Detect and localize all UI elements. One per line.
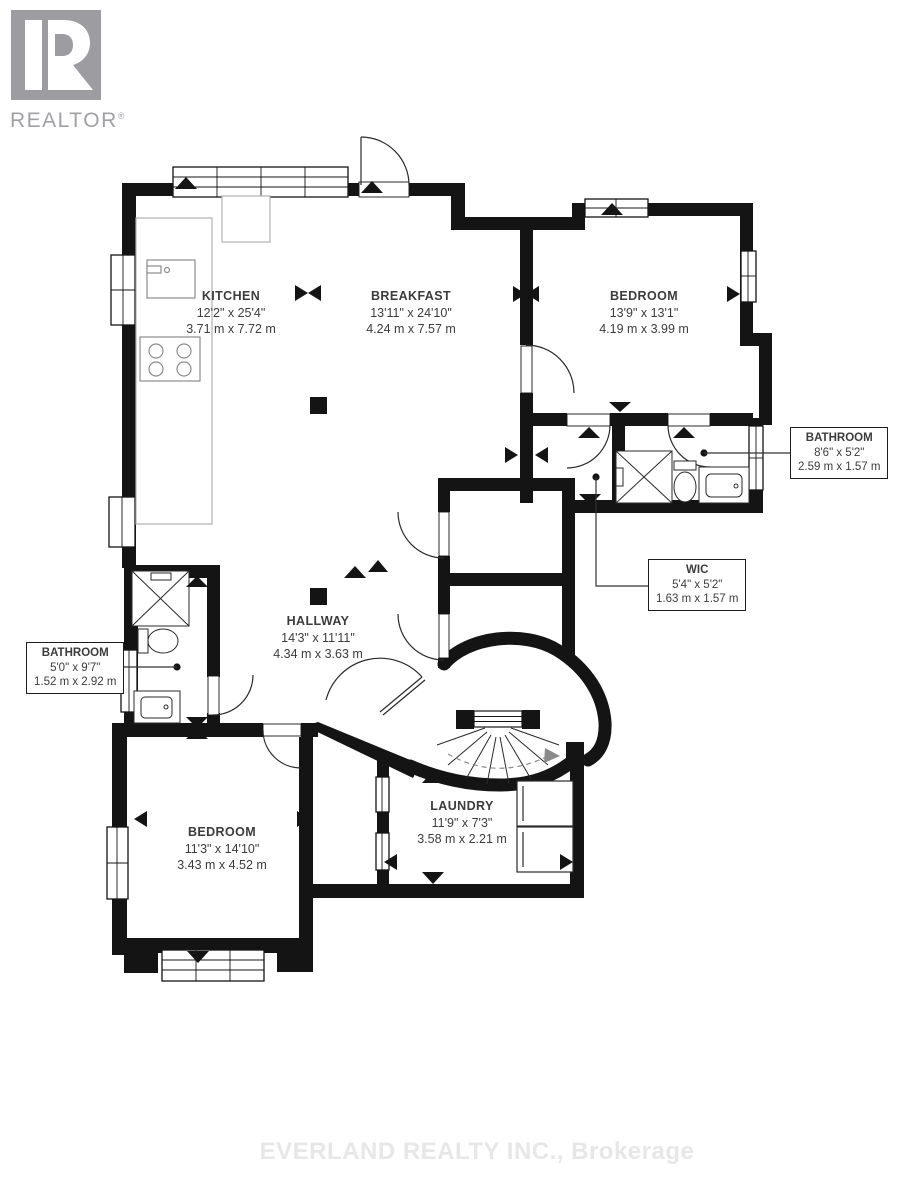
room-dim-imperial: 8'6" x 5'2" (798, 446, 880, 461)
room-name: BEDROOM (599, 288, 689, 305)
stair-direction-arrow (544, 748, 560, 763)
toilet-left-tank (138, 629, 148, 653)
entry-door (361, 137, 409, 185)
room-dim-imperial: 12'2" x 25'4" (186, 305, 276, 322)
washer (517, 781, 573, 826)
room-dim-imperial: 13'11" x 24'10" (366, 305, 456, 322)
room-dim-metric: 1.63 m x 1.57 m (656, 592, 738, 607)
toilet-right-tank (674, 461, 696, 470)
room-label-bathroom-right: BATHROOM 8'6" x 5'2" 2.59 m x 1.57 m (790, 427, 888, 479)
room-dim-imperial: 5'0" x 9'7" (34, 661, 116, 676)
bedroom-upper-door (526, 345, 574, 393)
floor-plan-page: REALTOR® (0, 0, 915, 1200)
column-1 (310, 397, 327, 414)
bathroom-left-fixtures (132, 571, 189, 723)
room-dim-metric: 3.43 m x 4.52 m (177, 857, 267, 874)
room-label-wic: WIC 5'4" x 5'2" 1.63 m x 1.57 m (648, 559, 746, 611)
room-dim-metric: 4.24 m x 7.57 m (366, 321, 456, 338)
room-dim-metric: 3.71 m x 7.72 m (186, 321, 276, 338)
room-name: BATHROOM (798, 431, 880, 446)
closet-door-2 (398, 614, 444, 660)
column-2 (310, 588, 327, 605)
room-dim-imperial: 5'4" x 5'2" (656, 578, 738, 593)
floor-plan-drawing (0, 0, 915, 1200)
room-dim-metric: 4.19 m x 3.99 m (599, 321, 689, 338)
closet-door-1 (398, 512, 444, 558)
room-dim-metric: 1.52 m x 2.92 m (34, 675, 116, 690)
bathroom-right-fixtures (616, 451, 749, 503)
room-dim-metric: 3.58 m x 2.21 m (417, 831, 507, 848)
room-label-bathroom-left: BATHROOM 5'0" x 9'7" 1.52 m x 2.92 m (26, 642, 124, 694)
room-label-hallway: HALLWAY 14'3" x 11'11" 4.34 m x 3.63 m (273, 613, 363, 663)
room-name: KITCHEN (186, 288, 276, 305)
room-dim-imperial: 11'9" x 7'3" (417, 815, 507, 832)
kitchen-stove (140, 337, 200, 381)
room-dim-imperial: 14'3" x 11'11" (273, 630, 363, 647)
room-name: BEDROOM (177, 824, 267, 841)
kitchen-fixtures (136, 196, 270, 524)
room-label-breakfast: BREAKFAST 13'11" x 24'10" 4.24 m x 7.57 … (366, 288, 456, 338)
room-dim-metric: 2.59 m x 1.57 m (798, 460, 880, 475)
stair-passage-door (326, 658, 425, 715)
room-name: BREAKFAST (366, 288, 456, 305)
stair-direction-arc (448, 754, 550, 768)
room-name: LAUNDRY (417, 798, 507, 815)
brokerage-watermark: EVERLAND REALTY INC., Brokerage (260, 1138, 695, 1166)
toilet-left-bowl (148, 629, 178, 653)
room-dim-imperial: 11'3" x 14'10" (177, 841, 267, 858)
toilet-right-bowl (674, 472, 696, 502)
kitchen-pantry (222, 196, 270, 242)
room-dim-imperial: 13'9" x 13'1" (599, 305, 689, 322)
room-label-bedroom-upper: BEDROOM 13'9" x 13'1" 4.19 m x 3.99 m (599, 288, 689, 338)
room-label-kitchen: KITCHEN 12'2" x 25'4" 3.71 m x 7.72 m (186, 288, 276, 338)
room-name: BATHROOM (34, 646, 116, 661)
room-dim-metric: 4.34 m x 3.63 m (273, 646, 363, 663)
room-name: HALLWAY (273, 613, 363, 630)
room-label-bedroom-lower: BEDROOM 11'3" x 14'10" 3.43 m x 4.52 m (177, 824, 267, 874)
room-name: WIC (656, 563, 738, 578)
room-label-laundry: LAUNDRY 11'9" x 7'3" 3.58 m x 2.21 m (417, 798, 507, 848)
